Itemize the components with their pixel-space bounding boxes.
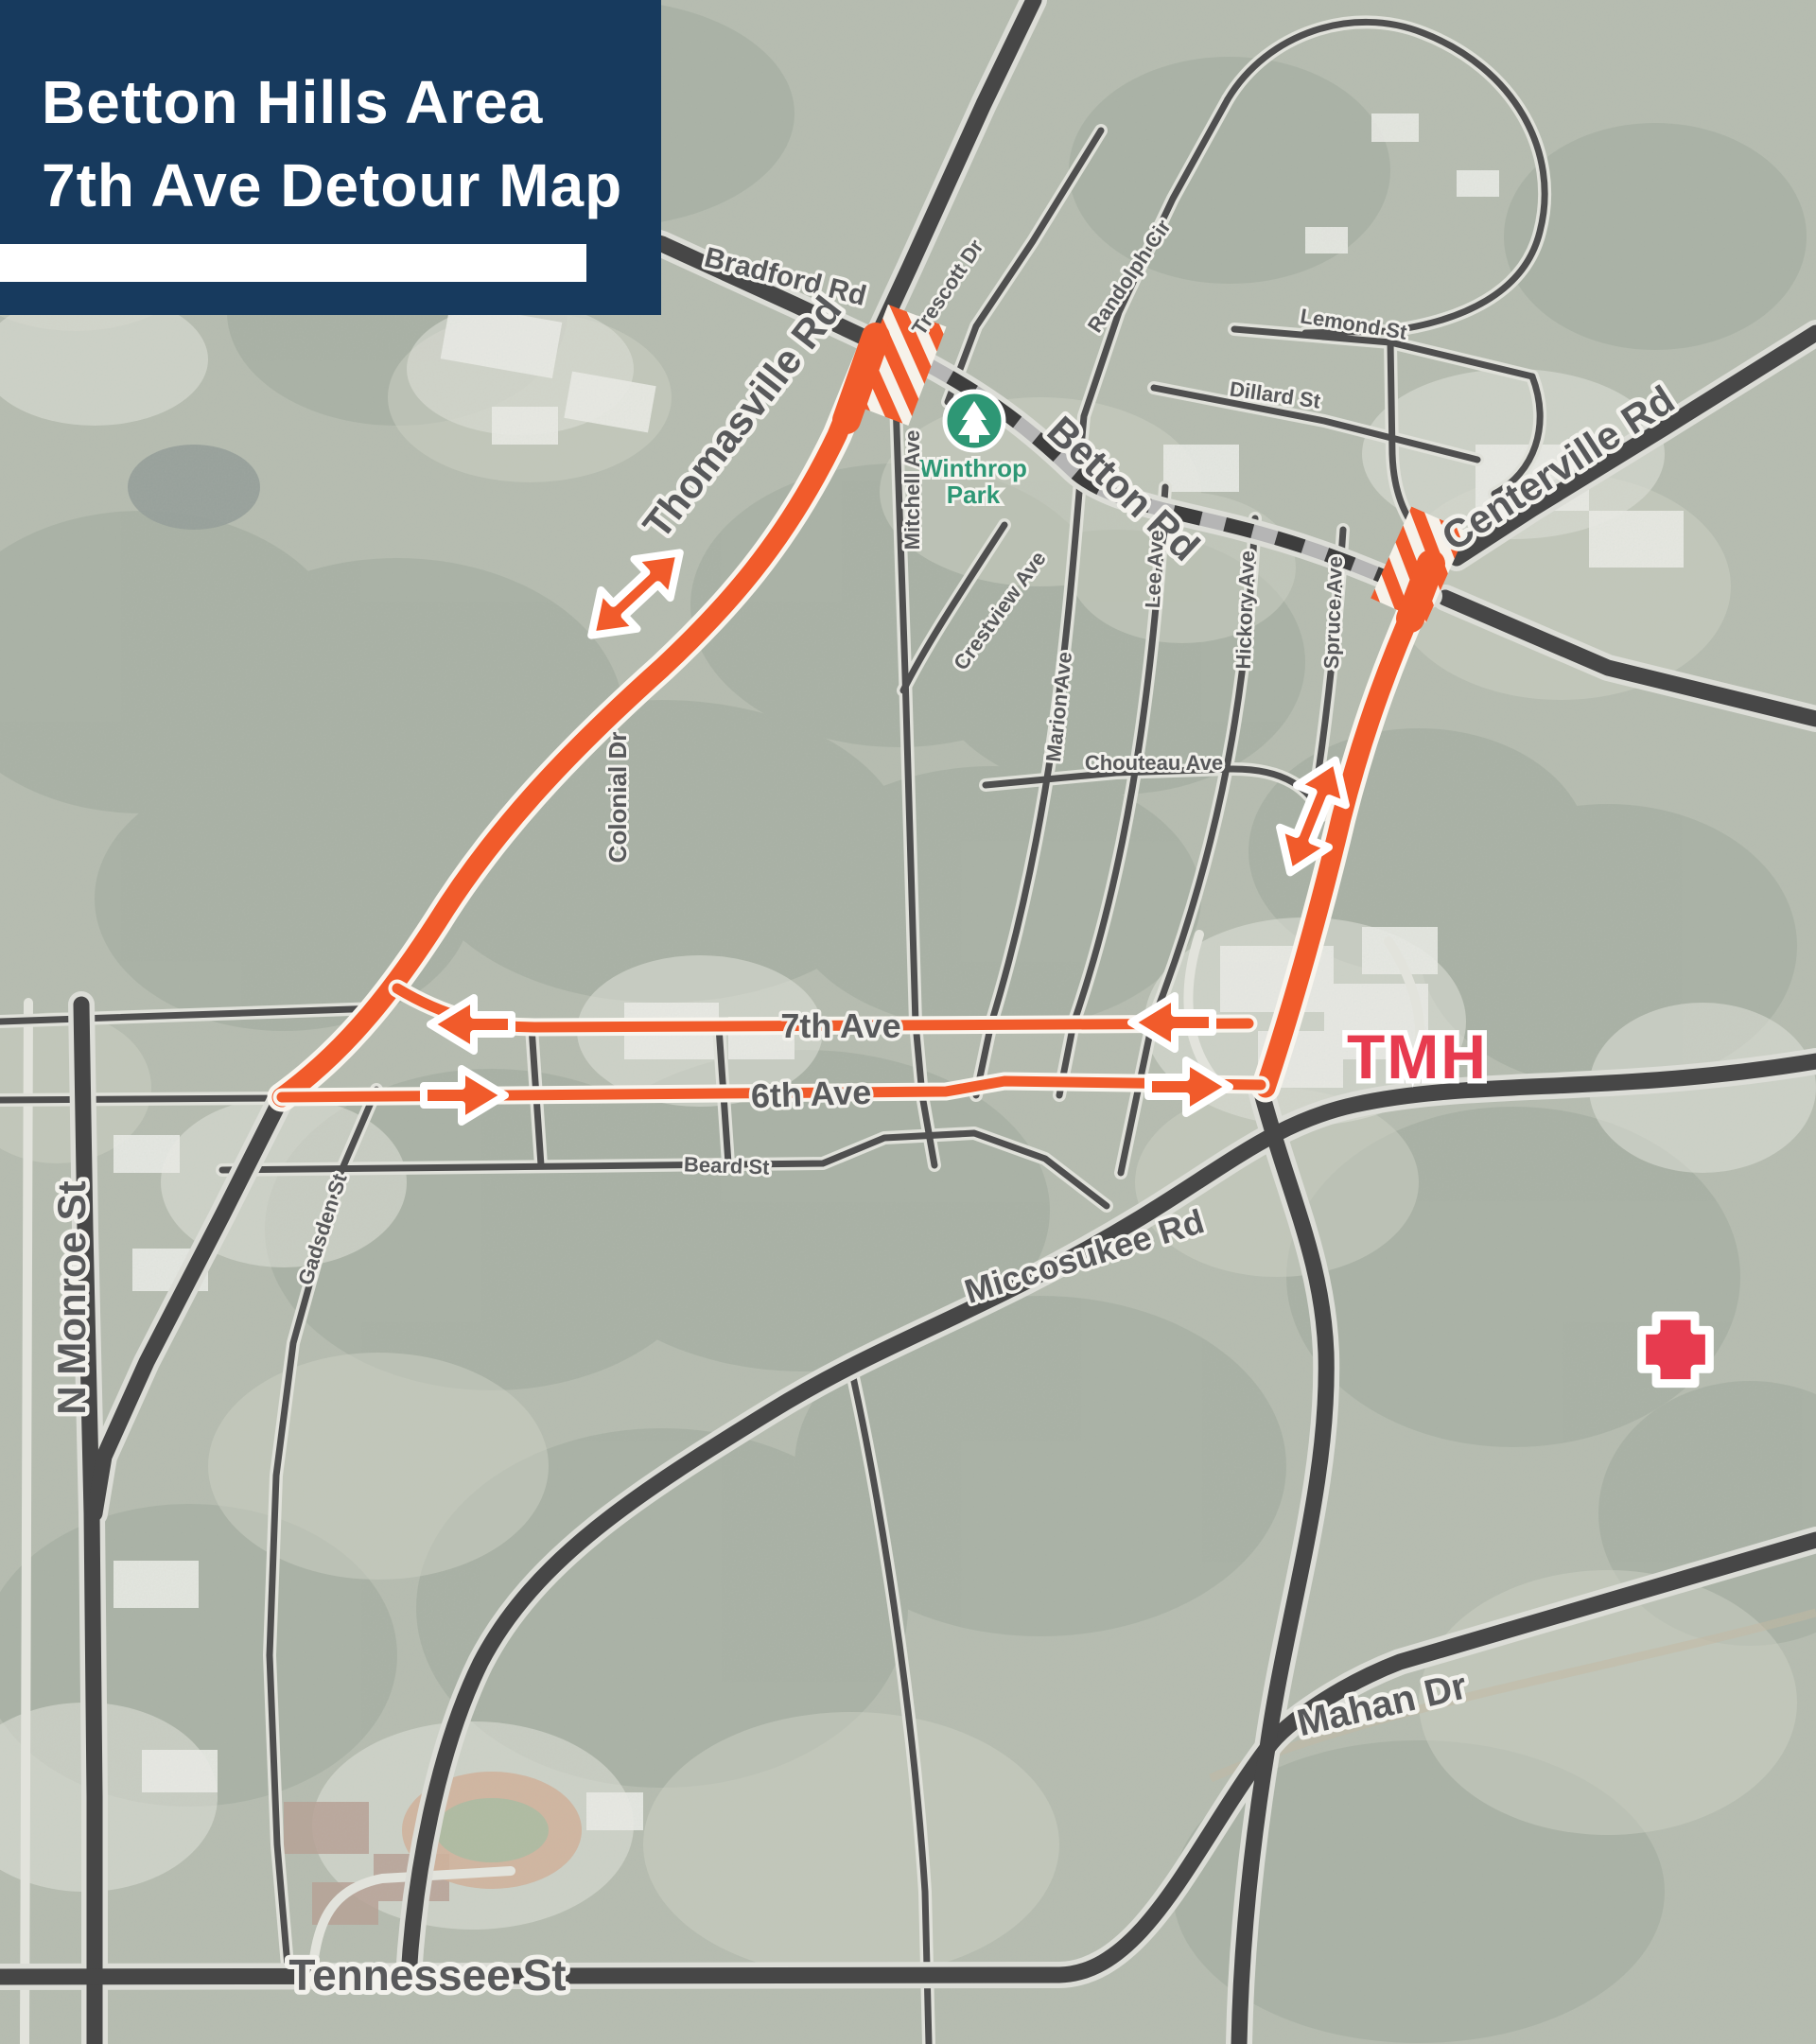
- road-label-lee: Lee Ave: [1141, 530, 1168, 609]
- road-label-6th-ave: 6th Ave: [750, 1073, 872, 1115]
- tree-icon: [945, 392, 1004, 450]
- road-label-spruce: Spruce Ave: [1319, 556, 1347, 670]
- map-title-line2: 7th Ave Detour Map: [42, 151, 622, 219]
- detour-map: Winthrop Park TMH Bradford Rd Thomasvill…: [0, 0, 1816, 2044]
- road-label-monroe: N Monroe St: [49, 1180, 94, 1414]
- winthrop-park-label-line1: Winthrop: [919, 454, 1027, 482]
- winthrop-park-label-line2: Park: [947, 480, 1001, 509]
- map-title-line1: Betton Hills Area: [42, 68, 543, 136]
- closure-bar-centerville: [1410, 564, 1431, 619]
- road-label-colonial: Colonial Dr: [603, 732, 632, 864]
- tmh-label: TMH: [1347, 1022, 1488, 1092]
- road-label-mitchell: Mitchell Ave: [900, 430, 924, 550]
- road-label-tennessee: Tennessee St: [288, 1950, 566, 2000]
- title-card: Betton Hills Area 7th Ave Detour Map: [0, 0, 661, 315]
- road-label-chouteau: Chouteau Ave: [1085, 751, 1223, 775]
- road-label-7th-ave: 7th Ave: [780, 1006, 900, 1045]
- road-label-beard: Beard St: [684, 1152, 771, 1179]
- title-underline-bar: [0, 244, 586, 282]
- road-label-hickory: Hickory Ave: [1231, 550, 1259, 670]
